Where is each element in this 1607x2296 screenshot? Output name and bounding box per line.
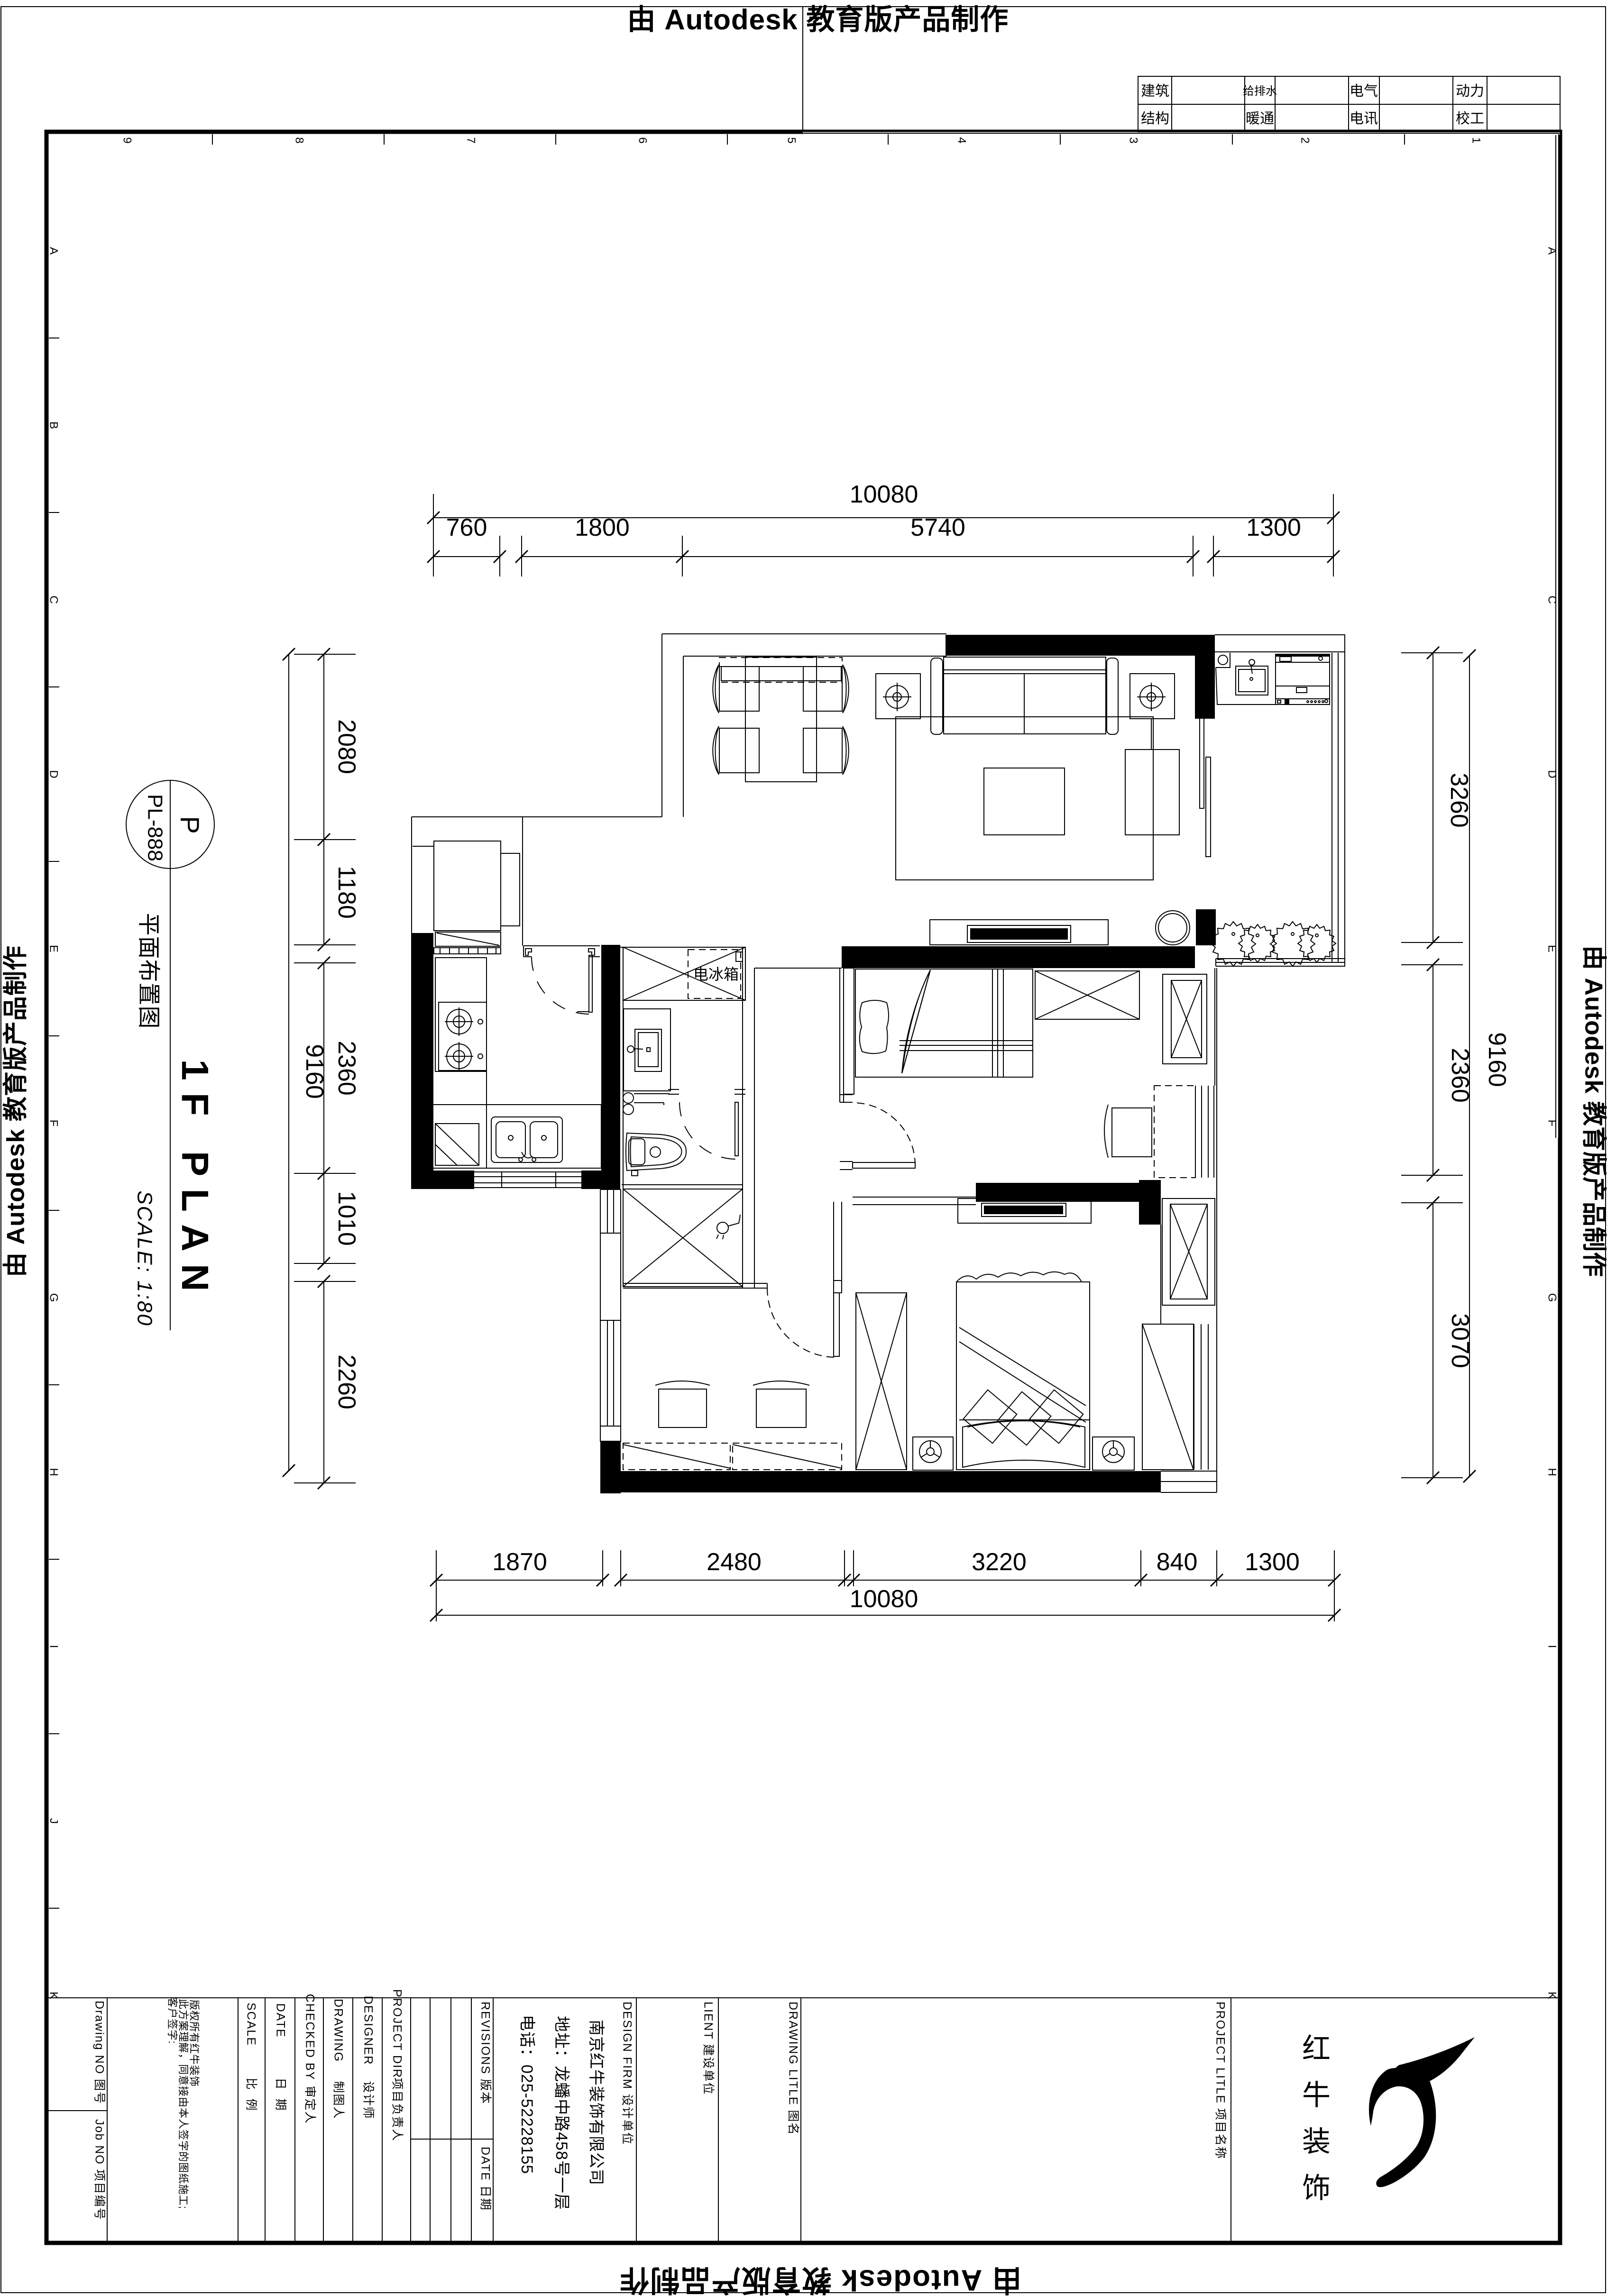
svg-text:G: G [47, 1293, 60, 1302]
svg-text:由 Autodesk 教育版产品制作: 由 Autodesk 教育版产品制作 [627, 4, 1009, 36]
svg-text:项目负责人: 项目负责人 [390, 2077, 404, 2141]
svg-text:PL-888: PL-888 [143, 794, 166, 861]
svg-text:E: E [1546, 945, 1559, 952]
svg-text:牛: 牛 [1302, 2079, 1331, 2111]
svg-text:南京红牛装饰有限公司: 南京红牛装饰有限公司 [587, 2020, 605, 2186]
svg-text:2480: 2480 [707, 1548, 762, 1576]
svg-text:3: 3 [1127, 137, 1140, 143]
svg-text:9: 9 [121, 137, 134, 143]
svg-text:电讯: 电讯 [1350, 111, 1378, 127]
svg-text:Job NO 项目编号: Job NO 项目编号 [92, 2119, 106, 2221]
svg-text:1300: 1300 [1246, 514, 1301, 541]
svg-text:暖通: 暖通 [1246, 111, 1274, 127]
svg-text:DRAWING LITLE 图名: DRAWING LITLE 图名 [786, 2002, 799, 2136]
svg-text:D: D [47, 770, 60, 778]
svg-text:电话：025-52228155: 电话：025-52228155 [518, 2015, 536, 2174]
svg-text:地址：龙蟠中路458号一层: 地址：龙蟠中路458号一层 [552, 2016, 570, 2210]
svg-text:DRAWING: DRAWING [331, 1999, 345, 2062]
svg-text:1F PLAN: 1F PLAN [174, 1059, 216, 1303]
svg-text:I: I [1546, 1645, 1559, 1648]
svg-text:10080: 10080 [850, 1585, 918, 1613]
svg-text:G: G [1546, 1293, 1559, 1302]
svg-text:设计师: 设计师 [361, 2081, 375, 2119]
svg-text:1800: 1800 [575, 514, 630, 541]
svg-text:2: 2 [1299, 137, 1312, 143]
svg-text:J: J [47, 1818, 60, 1824]
svg-text:建筑: 建筑 [1141, 83, 1169, 99]
svg-text:P: P [175, 816, 205, 833]
svg-text:1870: 1870 [492, 1548, 547, 1576]
svg-text:平面布置图: 平面布置图 [136, 913, 161, 1029]
svg-text:红: 红 [1302, 2033, 1331, 2065]
svg-text:C: C [47, 595, 60, 604]
svg-text:电气: 电气 [1350, 83, 1378, 99]
svg-text:CHECKED BY: CHECKED BY [303, 1994, 316, 2081]
svg-text:6: 6 [636, 137, 649, 143]
svg-text:日 期: 日 期 [274, 2078, 287, 2113]
svg-text:5740: 5740 [910, 514, 965, 541]
svg-text:由 Autodesk 教育版产品制作: 由 Autodesk 教育版产品制作 [1579, 945, 1607, 1277]
svg-text:8: 8 [293, 137, 306, 143]
svg-text:审定人: 审定人 [303, 2086, 316, 2124]
svg-text:H: H [47, 1468, 60, 1476]
svg-text:B: B [47, 421, 60, 429]
svg-text:SCALE: SCALE [244, 2003, 257, 2046]
svg-text:比 例: 比 例 [244, 2078, 257, 2113]
svg-text:1010: 1010 [333, 1191, 360, 1246]
svg-text:校工: 校工 [1456, 111, 1484, 127]
svg-text:饰: 饰 [1302, 2172, 1331, 2204]
svg-text:DATE 日期: DATE 日期 [478, 2147, 492, 2211]
svg-text:1: 1 [1470, 137, 1483, 143]
svg-text:3220: 3220 [972, 1548, 1027, 1576]
svg-text:A: A [47, 247, 60, 255]
svg-text:I: I [47, 1645, 60, 1648]
svg-text:SCALE: 1:80: SCALE: 1:80 [133, 1190, 156, 1326]
svg-text:1180: 1180 [333, 866, 360, 919]
svg-text:DATE: DATE [274, 2003, 287, 2038]
svg-text:2360: 2360 [333, 1041, 360, 1096]
svg-text:结构: 结构 [1141, 111, 1169, 127]
svg-text:D: D [1546, 770, 1559, 778]
svg-text:DESIGN FIRM 设计单位: DESIGN FIRM 设计单位 [620, 2002, 634, 2145]
svg-text:840: 840 [1157, 1548, 1198, 1576]
svg-text:REVISIONS 版本: REVISIONS 版本 [478, 2002, 492, 2104]
svg-text:9160: 9160 [1483, 1032, 1511, 1087]
svg-text:A: A [1546, 247, 1559, 255]
svg-text:由 Autodesk 教育版产品制作: 由 Autodesk 教育版产品制作 [619, 2264, 1022, 2296]
svg-text:4: 4 [955, 137, 968, 143]
svg-text:E: E [47, 945, 60, 952]
svg-text:7: 7 [465, 137, 478, 143]
svg-text:DESIGNER: DESIGNER [361, 1996, 375, 2066]
svg-text:C: C [1546, 595, 1559, 604]
svg-text:Drawing NO 图号: Drawing NO 图号 [92, 2001, 106, 2104]
svg-text:此方案理解，同意接由本人签字的图纸施工;: 此方案理解，同意接由本人签字的图纸施工; [177, 1999, 189, 2209]
svg-text:H: H [1546, 1468, 1559, 1476]
svg-text:F: F [47, 1120, 60, 1127]
svg-text:PROJECT DIR: PROJECT DIR [390, 1989, 404, 2078]
svg-text:LIENT 建设单位: LIENT 建设单位 [701, 2002, 715, 2095]
svg-text:版权所有红牛装饰: 版权所有红牛装饰 [188, 2000, 200, 2087]
svg-text:760: 760 [446, 514, 487, 541]
svg-text:3260: 3260 [1445, 773, 1473, 828]
svg-text:2260: 2260 [333, 1354, 360, 1409]
svg-text:动力: 动力 [1456, 83, 1484, 99]
svg-text:5: 5 [785, 137, 798, 143]
svg-text:电冰箱: 电冰箱 [693, 966, 739, 983]
svg-text:F: F [1546, 1120, 1559, 1127]
svg-text:客户签字:: 客户签字: [166, 1997, 178, 2044]
svg-text:2080: 2080 [333, 719, 360, 774]
svg-text:装: 装 [1302, 2126, 1331, 2158]
svg-text:1300: 1300 [1245, 1548, 1300, 1576]
svg-text:10080: 10080 [850, 481, 918, 508]
svg-text:由 Autodesk 教育版产品制作: 由 Autodesk 教育版产品制作 [2, 945, 30, 1277]
svg-text:PROJECT LITLE 项目名称: PROJECT LITLE 项目名称 [1213, 2002, 1227, 2159]
svg-text:制图人: 制图人 [331, 2081, 345, 2119]
svg-text:给排水: 给排水 [1243, 85, 1277, 98]
